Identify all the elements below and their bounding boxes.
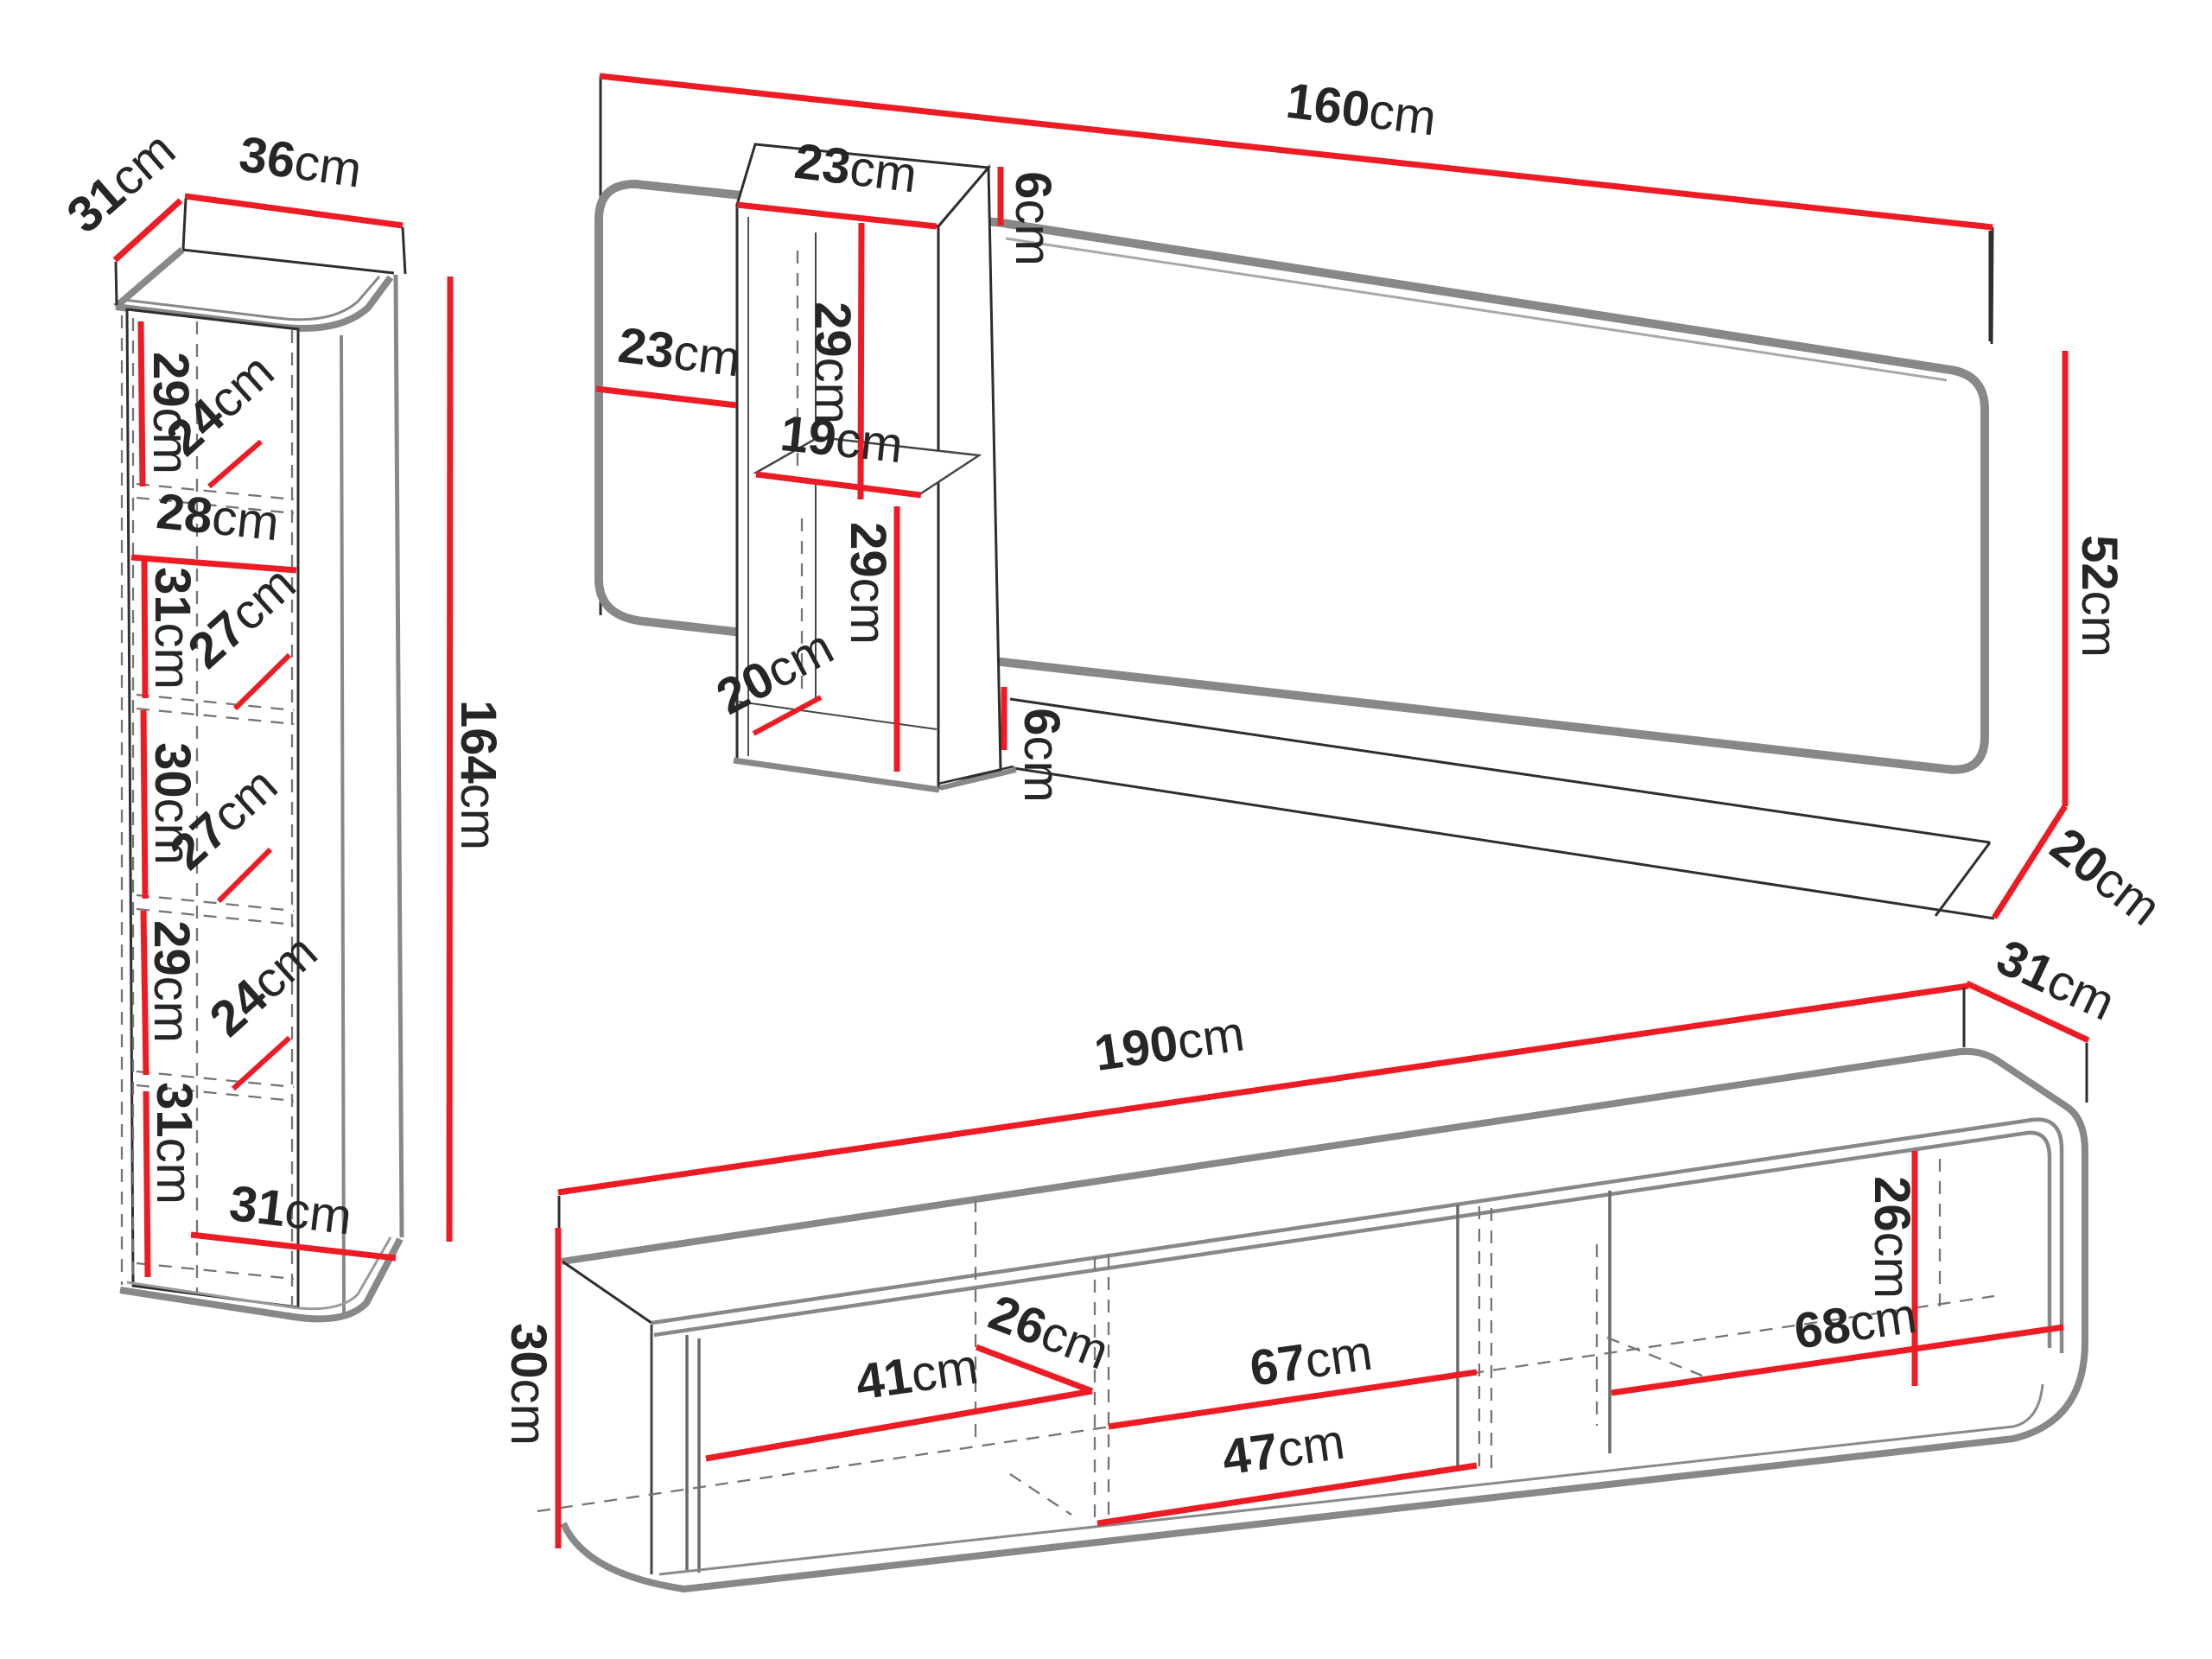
svg-text:29cm: 29cm: [143, 920, 200, 1043]
svg-text:6cm: 6cm: [1014, 708, 1070, 803]
svg-text:31cm: 31cm: [146, 1082, 202, 1205]
svg-text:29cm: 29cm: [804, 302, 861, 424]
svg-text:164cm: 164cm: [450, 700, 506, 850]
svg-text:26cm: 26cm: [1864, 1176, 1920, 1299]
svg-text:30cm: 30cm: [500, 1323, 556, 1446]
svg-text:52cm: 52cm: [2071, 535, 2127, 658]
svg-text:6cm: 6cm: [1005, 171, 1061, 266]
svg-text:29cm: 29cm: [840, 522, 896, 645]
